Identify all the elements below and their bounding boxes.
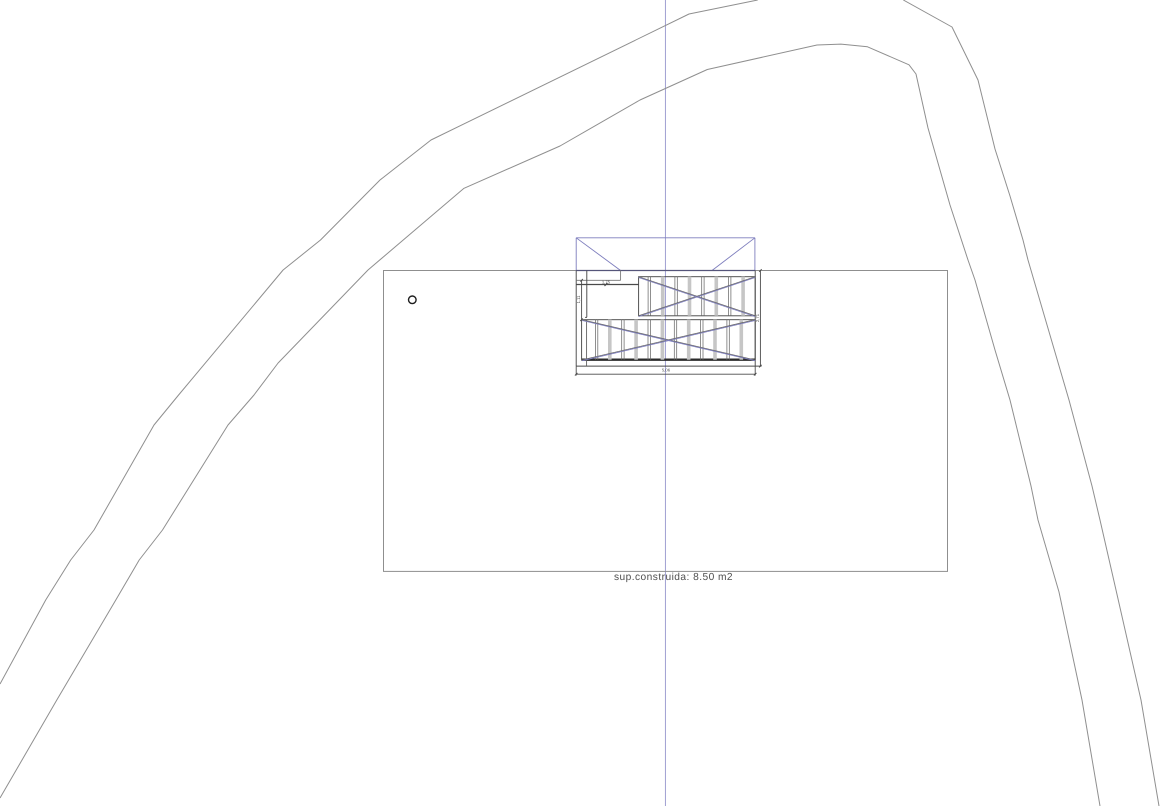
svg-text:2,71: 2,71 [755, 313, 760, 322]
svg-text:sup.construida: 8.50 m2: sup.construida: 8.50 m2 [614, 572, 733, 583]
svg-text:1,75: 1,75 [602, 279, 611, 284]
svg-text:1,11: 1,11 [576, 295, 581, 304]
svg-text:5,06: 5,06 [662, 368, 671, 373]
